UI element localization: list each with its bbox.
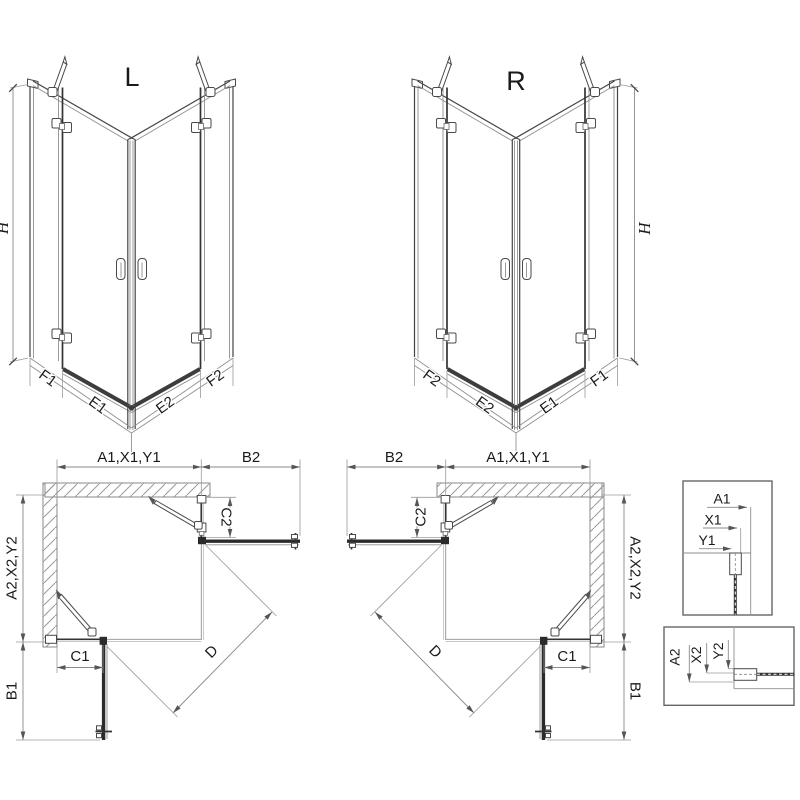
dim-label-e1-left: E1 [85, 393, 110, 418]
dim-label-height-left: H [0, 220, 12, 235]
dim-label-f2-left: F2 [203, 366, 227, 390]
shower-enclosure-technical-drawing: L H F1 E1 E2 F2 R H F2 E2 E1 F1 A1,X1,Y1… [0, 0, 800, 800]
front-view-right-geometry [412, 57, 638, 452]
dim-label-diagonal-right-plan: D [425, 642, 445, 662]
detail-label-x1: X1 [704, 512, 721, 528]
dim-label-width-right-plan: A1,X1,Y1 [486, 449, 549, 466]
wall-top-right-plan [437, 483, 602, 497]
dim-label-fixedtop-right-plan: C2 [413, 507, 430, 526]
dim-label-doorside-right-plan: B1 [627, 682, 644, 700]
dim-label-f1-left: F1 [36, 366, 60, 390]
view-title-right: R [506, 66, 526, 96]
dim-label-doorwidth-right-plan: B2 [385, 449, 403, 466]
plan-right-geometry [347, 460, 631, 741]
dim-label-depth-left-plan: A2,X2,Y2 [4, 536, 21, 599]
detail-label-x2: X2 [688, 646, 704, 663]
dim-label-height-right: H [635, 221, 654, 236]
front-view-left: L H F1 E1 E2 F2 [0, 57, 236, 452]
detail-frame-bottom [664, 627, 794, 705]
dim-label-e1-right: E1 [537, 393, 562, 418]
dim-label-diagonal-left-plan: D [202, 642, 222, 662]
dim-label-width-left-plan: A1,X1,Y1 [97, 449, 160, 466]
wall-side-right-plan [590, 483, 604, 647]
view-title-left: L [124, 62, 139, 92]
plan-view-right: B2 A1,X1,Y1 C2 A2,X2,Y2 C1 B1 D [347, 449, 644, 740]
detail-box-bottom: A2 X2 Y2 [664, 627, 794, 705]
detail-label-y1: Y1 [698, 532, 715, 548]
dim-label-fixedside-left-plan: C1 [70, 648, 89, 665]
plan-left-geometry [16, 460, 300, 741]
dim-label-fixedside-right-plan: C1 [557, 648, 576, 665]
dim-label-e2-left: E2 [153, 393, 178, 418]
detail-label-y2: Y2 [710, 642, 726, 659]
dim-label-f1-right: F1 [587, 366, 611, 390]
dim-label-f2-right: F2 [420, 366, 444, 390]
dim-label-fixedtop-left-plan: C2 [218, 507, 235, 526]
detail-box-top: A1 X1 Y1 [683, 481, 772, 615]
dim-label-doorside-left-plan: B1 [4, 682, 21, 700]
wall-top-left-plan [45, 483, 210, 497]
detail-label-a2: A2 [667, 648, 683, 665]
drawing-canvas: L H F1 E1 E2 F2 R H F2 E2 E1 F1 A1,X1,Y1… [0, 0, 800, 800]
dim-label-doorwidth-left-plan: B2 [242, 449, 260, 466]
wall-side-left-plan [43, 483, 57, 647]
front-view-left-geometry [9, 57, 235, 452]
front-view-right: R H F2 E2 E1 F1 [412, 57, 654, 452]
dim-label-depth-right-plan: A2,X2,Y2 [627, 536, 644, 599]
plan-view-left: A1,X1,Y1 B2 C2 A2,X2,Y2 C1 B1 D [4, 449, 301, 740]
detail-label-a1: A1 [713, 491, 730, 507]
